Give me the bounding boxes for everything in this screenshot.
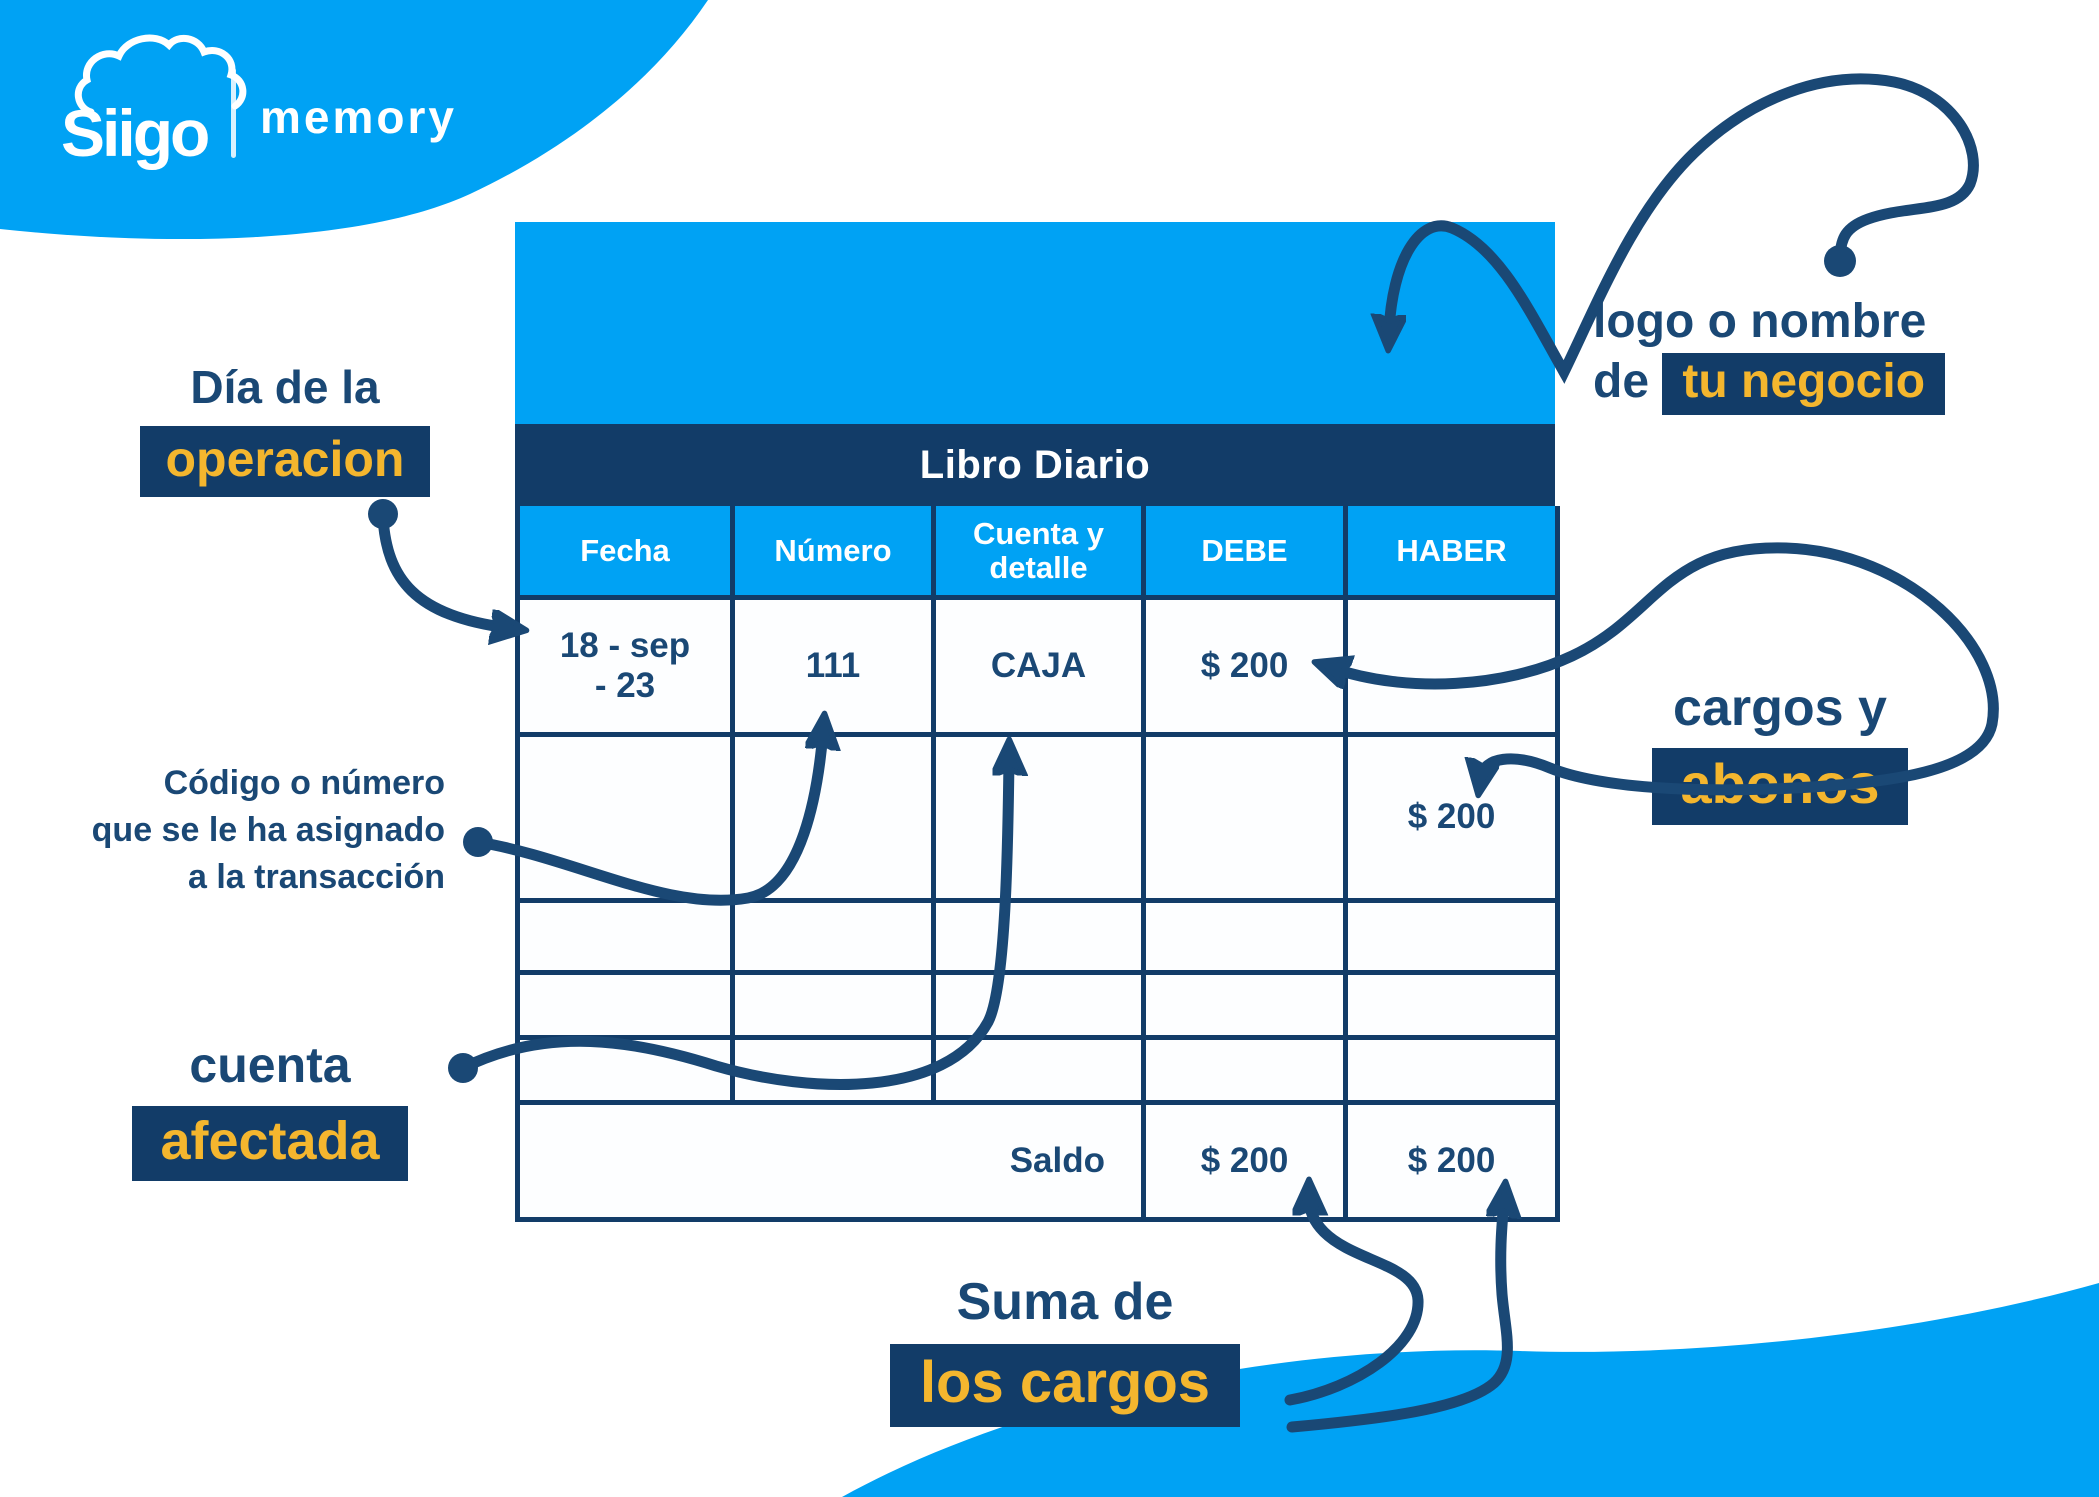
siigo-logo-text: Siigo <box>61 96 208 170</box>
arrow-dot-operation-day <box>368 499 398 529</box>
column-header-numero: Número <box>735 506 936 600</box>
charges-credits-highlight: abonos <box>1652 748 1907 825</box>
cell-haber-r2: $ 200 <box>1348 737 1560 903</box>
annotation-charges-credits: cargos y abonos <box>1600 678 1960 825</box>
ledger-grid: Fecha Número Cuenta y detalle DEBE HABER… <box>515 506 1555 1222</box>
cell-fecha-r2 <box>520 737 735 903</box>
arrow-operation-day-to-fecha <box>383 518 508 628</box>
cell-haber-r4 <box>1348 975 1560 1040</box>
ledger-title: Libro Diario <box>515 424 1555 506</box>
operation-day-highlight: operacion <box>140 426 431 497</box>
ledger-table: Libro Diario Fecha Número Cuenta y detal… <box>515 222 1555 1222</box>
arrow-charges-sum-to-saldo-debe <box>1290 1198 1418 1400</box>
column-header-haber: HABER <box>1348 506 1560 600</box>
annotation-affected-account: cuenta afectada <box>80 1036 460 1181</box>
saldo-label: Saldo <box>520 1105 1146 1222</box>
saldo-debe: $ 200 <box>1146 1105 1348 1222</box>
cell-haber-r3 <box>1348 903 1560 975</box>
cell-debe-r2 <box>1146 737 1348 903</box>
cell-debe-r4 <box>1146 975 1348 1040</box>
cell-debe-r5 <box>1146 1040 1348 1105</box>
business-logo-line2: de tu negocio <box>1593 353 2073 415</box>
cell-numero-r5 <box>735 1040 936 1105</box>
cell-fecha-r1: 18 - sep - 23 <box>520 600 735 737</box>
arrow-charges-sum-to-saldo-haber <box>1292 1200 1507 1427</box>
cell-debe-r3 <box>1146 903 1348 975</box>
operation-day-text: Día de la <box>100 360 470 414</box>
cell-fecha-r4 <box>520 975 735 1040</box>
saldo-haber: $ 200 <box>1348 1105 1560 1222</box>
annotation-business-logo: logo o nombre de tu negocio <box>1593 296 2073 415</box>
column-header-debe: DEBE <box>1146 506 1348 600</box>
cell-debe-r1: $ 200 <box>1146 600 1348 737</box>
ledger-logo-area <box>515 222 1555 424</box>
infographic-canvas: Siigo memory Libro Diario Fecha Número C… <box>0 0 2099 1497</box>
column-header-fecha: Fecha <box>520 506 735 600</box>
cell-cuenta-r4 <box>936 975 1146 1040</box>
cell-numero-r3 <box>735 903 936 975</box>
cell-numero-r1: 111 <box>735 600 936 737</box>
annotation-transaction-code: Código o número que se le ha asignado a … <box>30 760 445 901</box>
business-logo-highlight: tu negocio <box>1662 353 1945 415</box>
arrow-dot-transaction-code <box>463 827 493 857</box>
transaction-code-line3: a la transacción <box>30 854 445 901</box>
transaction-code-line2: que se le ha asignado <box>30 807 445 854</box>
cell-numero-r4 <box>735 975 936 1040</box>
brand-divider <box>231 68 236 158</box>
brand-logo: Siigo memory <box>55 28 515 178</box>
charges-sum-text: Suma de <box>840 1272 1290 1332</box>
annotation-charges-sum: Suma de los cargos <box>840 1272 1290 1427</box>
cell-cuenta-r2 <box>936 737 1146 903</box>
brand-product-text: memory <box>260 91 457 143</box>
cell-haber-r1 <box>1348 600 1560 737</box>
cell-cuenta-r1: CAJA <box>936 600 1146 737</box>
charges-sum-highlight: los cargos <box>890 1344 1240 1427</box>
cell-haber-r5 <box>1348 1040 1560 1105</box>
transaction-code-line1: Código o número <box>30 760 445 807</box>
column-header-cuenta: Cuenta y detalle <box>936 506 1146 600</box>
business-logo-line1: logo o nombre <box>1593 296 2073 349</box>
affected-account-text: cuenta <box>80 1036 460 1094</box>
cell-cuenta-r3 <box>936 903 1146 975</box>
charges-credits-text: cargos y <box>1600 678 1960 738</box>
cell-numero-r2 <box>735 737 936 903</box>
cell-fecha-r3 <box>520 903 735 975</box>
cell-fecha-r5 <box>520 1040 735 1105</box>
cell-cuenta-r5 <box>936 1040 1146 1105</box>
annotation-operation-day: Día de la operacion <box>100 360 470 497</box>
affected-account-highlight: afectada <box>132 1106 407 1181</box>
arrow-dot-business-logo <box>1824 245 1856 277</box>
